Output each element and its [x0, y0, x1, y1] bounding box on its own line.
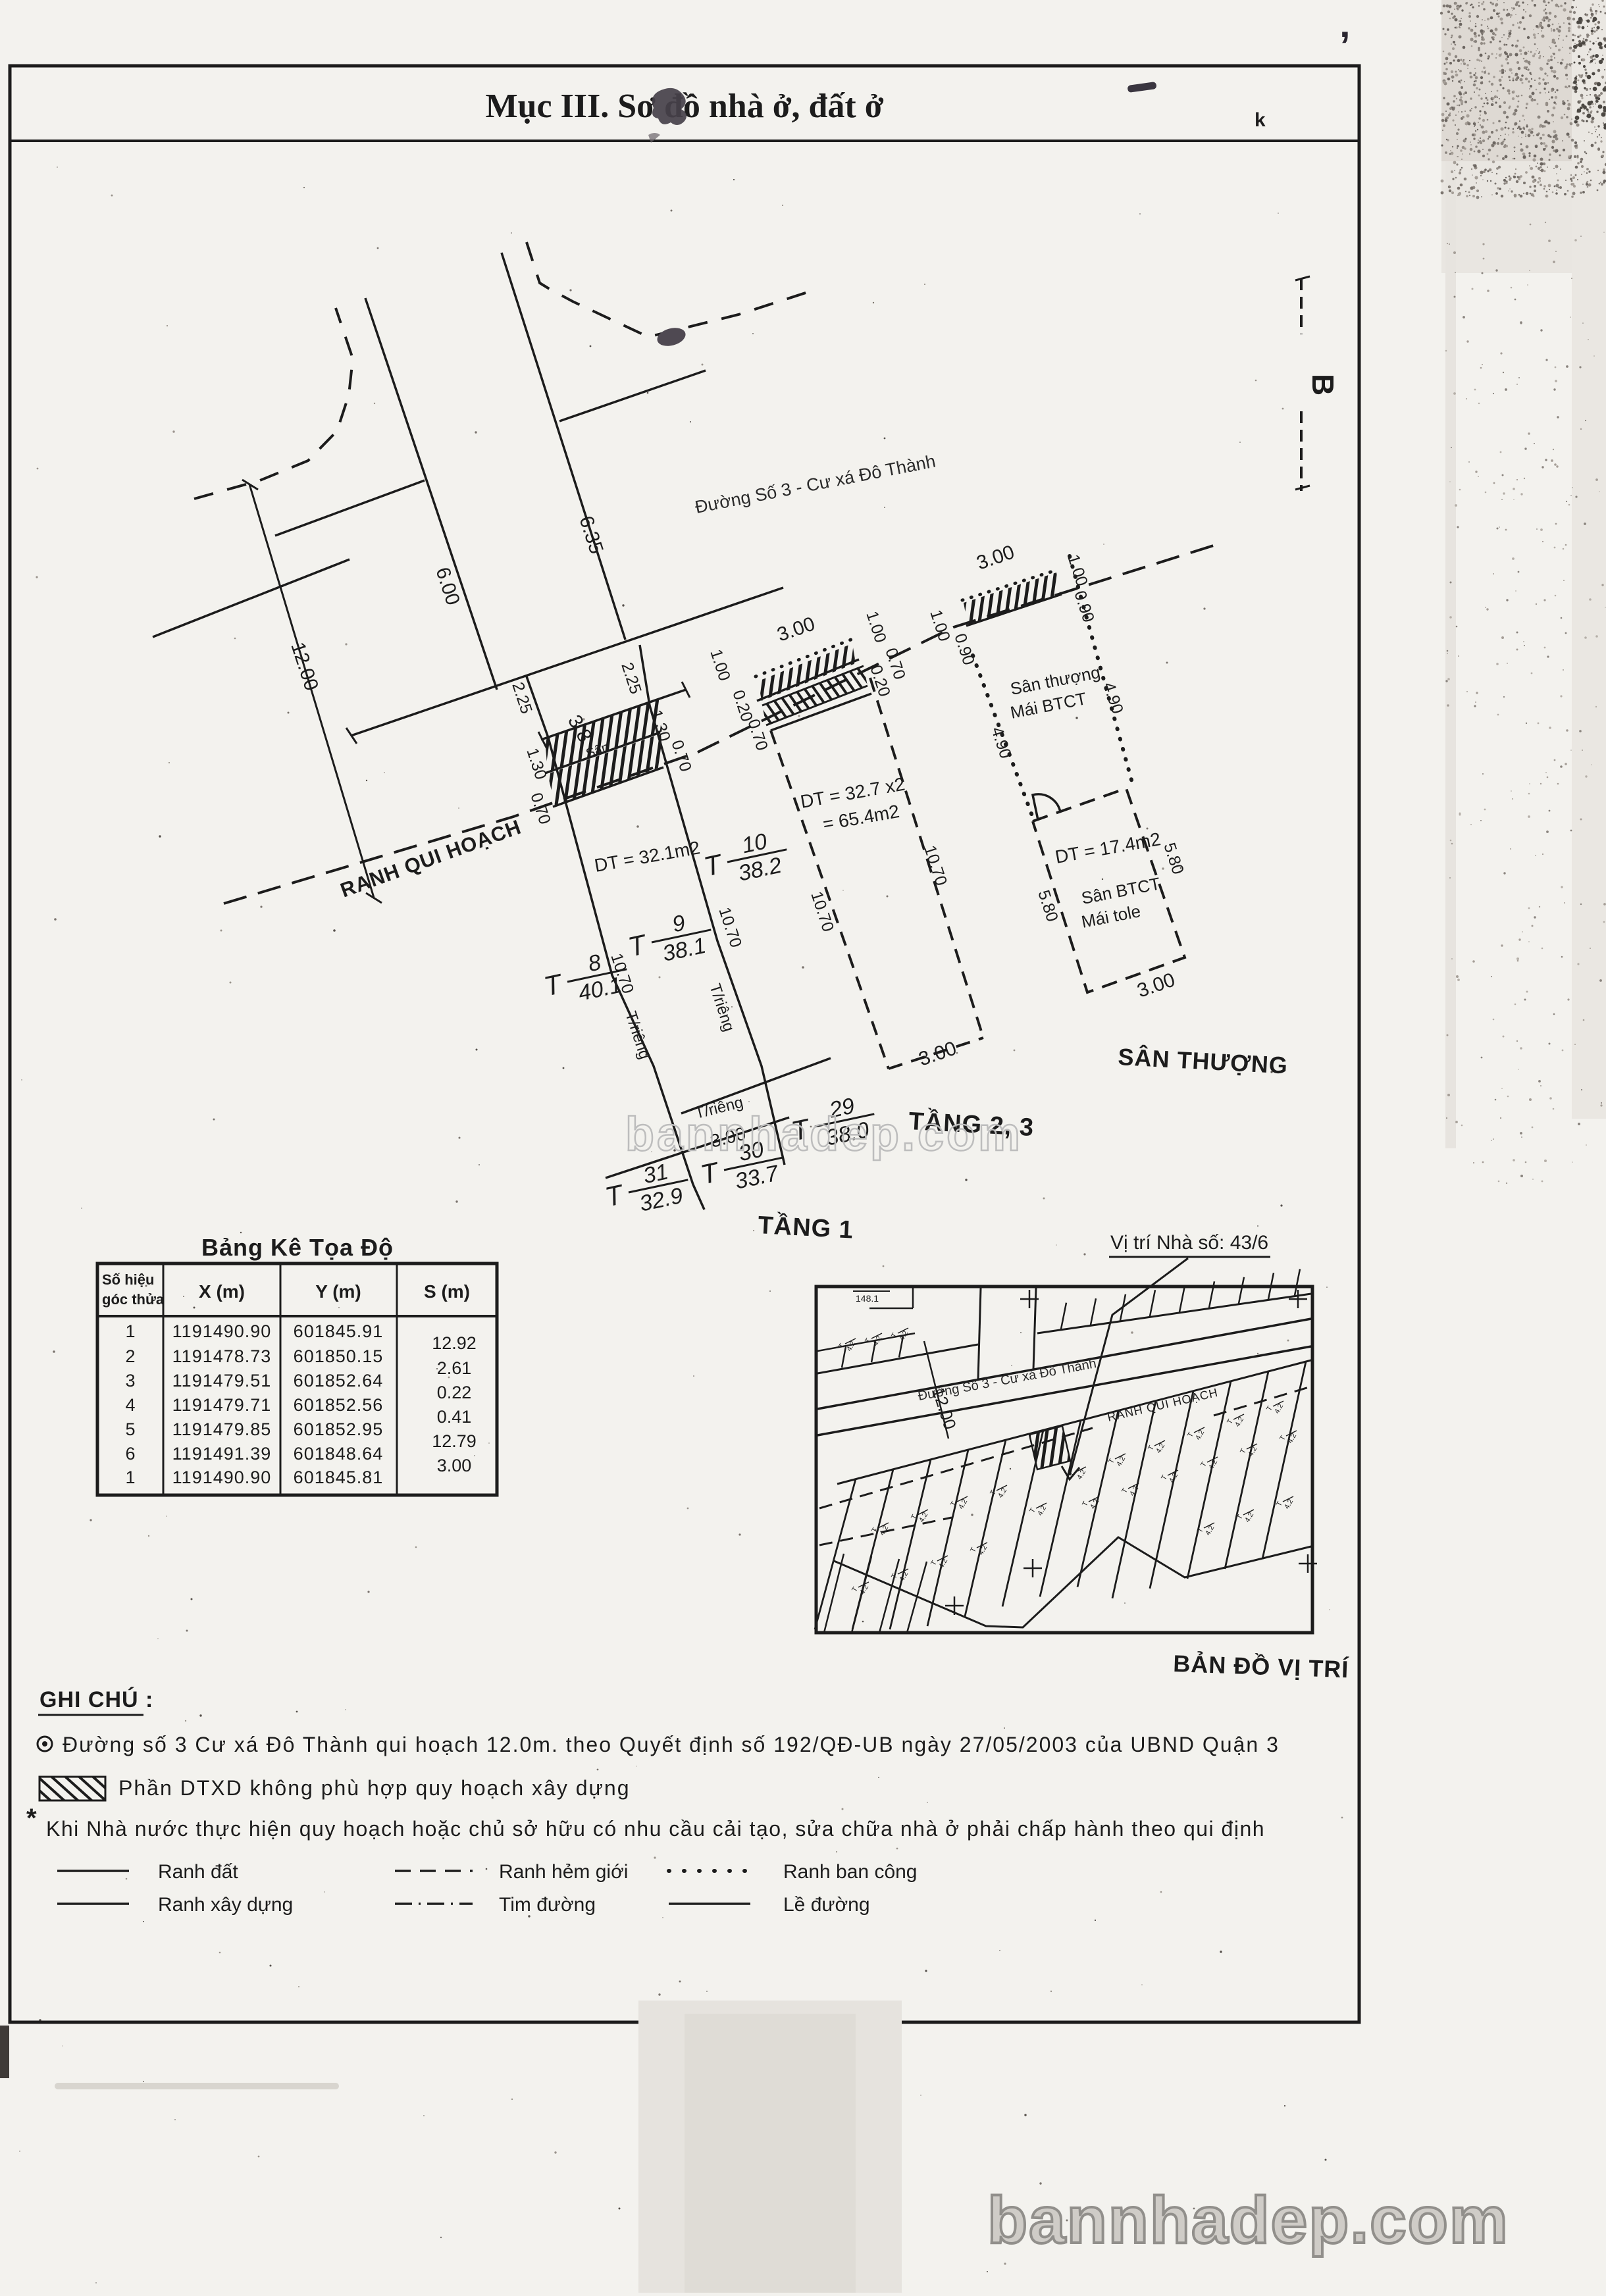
- svg-text:601852.56: 601852.56: [294, 1395, 384, 1415]
- svg-text:601845.91: 601845.91: [294, 1321, 384, 1341]
- svg-text:Số hiệu: Số hiệu: [102, 1271, 154, 1288]
- svg-text:12.92: 12.92: [432, 1333, 477, 1353]
- svg-text:1191490.90: 1191490.90: [172, 1321, 272, 1341]
- svg-text:10: 10: [740, 829, 769, 858]
- svg-text:Y (m): Y (m): [315, 1281, 361, 1302]
- svg-text:601852.95: 601852.95: [294, 1419, 384, 1439]
- svg-text:Phần DTXD không phù hợp quy ho: Phần DTXD không phù hợp quy hoạch xây dự…: [118, 1776, 631, 1800]
- svg-text:B: B: [1306, 374, 1340, 395]
- svg-text:1191478.73: 1191478.73: [172, 1346, 272, 1366]
- svg-text:12.79: 12.79: [432, 1431, 477, 1451]
- svg-text:Ranh hẻm giới: Ranh hẻm giới: [499, 1861, 628, 1883]
- svg-text:31: 31: [641, 1159, 671, 1188]
- svg-text:601850.15: 601850.15: [294, 1346, 384, 1366]
- svg-text:0.41: 0.41: [437, 1407, 472, 1427]
- svg-text:k: k: [1255, 109, 1266, 131]
- svg-text:601852.64: 601852.64: [294, 1371, 384, 1390]
- svg-text:1191479.85: 1191479.85: [172, 1419, 272, 1439]
- svg-text:X (m): X (m): [199, 1281, 245, 1302]
- svg-text:3.00: 3.00: [437, 1456, 472, 1475]
- svg-text:148.1: 148.1: [856, 1293, 879, 1304]
- svg-text:5: 5: [125, 1419, 135, 1439]
- svg-text:601848.64: 601848.64: [294, 1444, 384, 1464]
- svg-text:6: 6: [125, 1444, 135, 1464]
- svg-text:601845.81: 601845.81: [294, 1467, 384, 1487]
- svg-text:’: ’: [1339, 24, 1351, 68]
- svg-text:2.61: 2.61: [437, 1358, 472, 1378]
- svg-text:2: 2: [125, 1346, 135, 1366]
- svg-text:1: 1: [125, 1321, 135, 1341]
- svg-text:4: 4: [125, 1395, 135, 1415]
- svg-text:Đường số 3 Cư xá Đô Thành qui: Đường số 3 Cư xá Đô Thành qui hoạch 12.0…: [63, 1733, 1280, 1756]
- svg-text:1191479.51: 1191479.51: [172, 1371, 272, 1390]
- svg-text:Lề đường: Lề đường: [783, 1894, 870, 1916]
- svg-text:S (m): S (m): [424, 1281, 470, 1302]
- svg-text:bannhadep.com: bannhadep.com: [987, 2183, 1509, 2257]
- svg-text:TẦNG 1: TẦNG 1: [758, 1210, 854, 1244]
- svg-text:Bảng Kê Tọa Độ: Bảng Kê Tọa Độ: [201, 1234, 394, 1261]
- svg-text:Khi Nhà nước thực hiện quy hoạ: Khi Nhà nước thực hiện quy hoạch hoặc ch…: [46, 1817, 1265, 1841]
- svg-text:3: 3: [125, 1371, 135, 1390]
- svg-text:0.22: 0.22: [437, 1383, 472, 1402]
- svg-text:1191491.39: 1191491.39: [172, 1444, 272, 1464]
- svg-text:1191490.90: 1191490.90: [172, 1467, 272, 1487]
- svg-text:GHI CHÚ :: GHI CHÚ :: [39, 1687, 153, 1712]
- svg-text:bannhadep.com: bannhadep.com: [625, 1108, 1023, 1161]
- svg-text:Ranh xây dựng: Ranh xây dựng: [158, 1894, 293, 1916]
- svg-text:1: 1: [125, 1467, 135, 1487]
- svg-text:*: *: [26, 1804, 37, 1833]
- svg-text:Tim đường: Tim đường: [499, 1894, 596, 1916]
- svg-text:Ranh ban công: Ranh ban công: [783, 1861, 918, 1883]
- svg-text:Vị trí Nhà số: 43/6: Vị trí Nhà số: 43/6: [1110, 1232, 1268, 1254]
- svg-text:góc thửa: góc thửa: [102, 1291, 165, 1308]
- svg-text:Ranh đất: Ranh đất: [158, 1861, 238, 1883]
- svg-text:1191479.71: 1191479.71: [172, 1395, 272, 1415]
